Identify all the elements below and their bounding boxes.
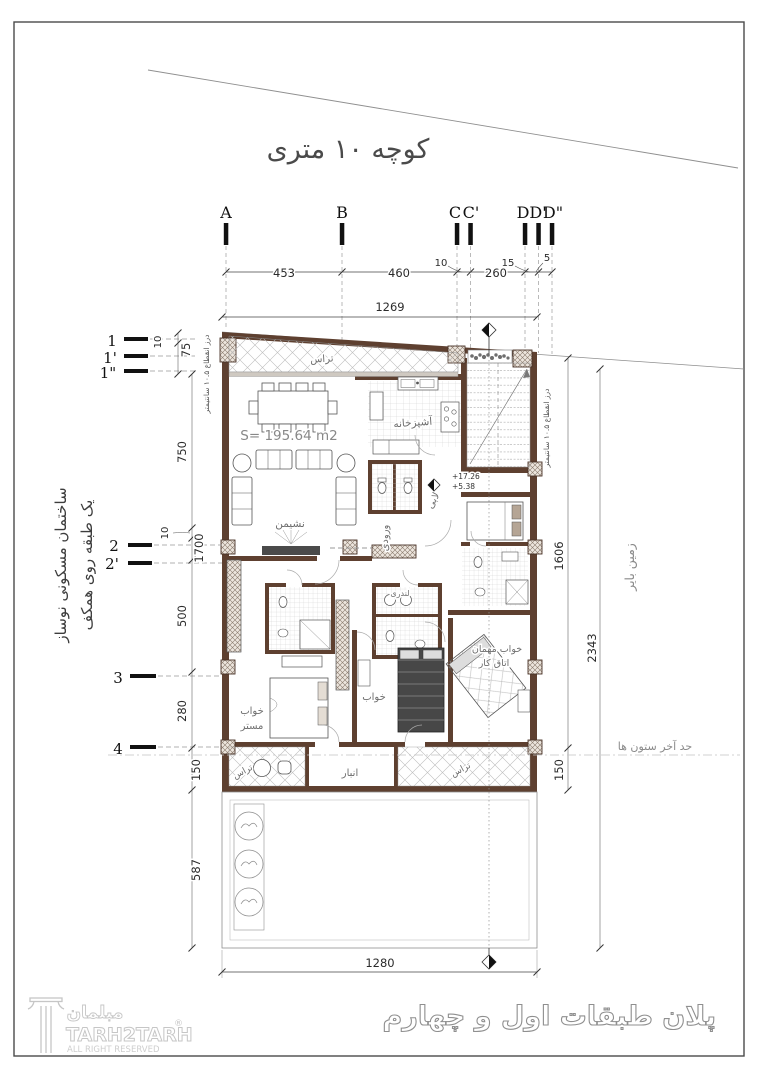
dim-c-gap: 10 <box>435 258 448 269</box>
stairwell <box>467 363 530 467</box>
dim-d-gap2: 5 <box>544 253 550 264</box>
street-edge-line <box>148 70 738 168</box>
dim-left-280: 280 <box>175 700 189 722</box>
dim-left-750: 750 <box>175 441 189 463</box>
dim-left-500: 500 <box>175 605 189 627</box>
room-label-living: نشیمن <box>275 518 305 530</box>
dim-right-150: 150 <box>552 759 566 781</box>
dim-left-10b: 10 <box>160 527 171 540</box>
bath-right <box>462 548 528 606</box>
registered-mark: ® <box>174 1019 183 1029</box>
level-marker-icon <box>428 479 440 491</box>
drawing-sheet: کوچه ۱۰ متری A B C C' D D' D" 453 460 26… <box>0 0 764 1080</box>
guest-office-room: خواب مهمان اتاق کار <box>446 634 530 717</box>
dining-set <box>249 383 337 432</box>
flag-marker-bottom <box>482 948 496 969</box>
dim-bottom-width: 1280 <box>365 956 394 970</box>
dim-right-2343: 2343 <box>585 633 599 662</box>
middle-bedroom: خواب <box>358 648 444 732</box>
kitchen-stove <box>441 402 459 432</box>
room-label-master1: خواب <box>240 706 264 717</box>
top-dimension-chain: 453 460 260 10 15 5 <box>223 253 556 280</box>
grid-row-label: 1 <box>107 332 117 350</box>
bed-top-right <box>467 502 523 540</box>
brand-logo: مبلمان TARH2TARH ® ALL RIGHT RESERVED <box>28 998 193 1055</box>
room-label-laundry: لندری <box>390 589 409 598</box>
tv-console <box>262 546 320 555</box>
columns-limit-label: حد آخر ستون ها <box>618 739 692 753</box>
grid-col-label: B <box>336 203 348 222</box>
grid-col-label: D <box>517 203 530 222</box>
street-name: کوچه ۱۰ متری <box>267 134 430 165</box>
dim-left-10a: 10 <box>153 336 164 349</box>
left-dimension-chain: 10 75 750 10 1700 500 280 150 587 <box>153 330 206 952</box>
bottom-band: تراس انبار تراس <box>229 747 530 786</box>
grid-col-ticks <box>224 223 555 245</box>
lot-width-dimension: 1269 <box>219 300 541 321</box>
grid-row-label: 2' <box>105 555 119 573</box>
dim-left-587: 587 <box>189 859 203 881</box>
building-note-2: یک طبقه روی همکف <box>78 500 96 631</box>
room-label-entry: ورودی <box>380 524 391 551</box>
dim-ab: 453 <box>273 266 295 280</box>
dim-right-1606: 1606 <box>552 541 566 570</box>
dim-left-75: 75 <box>179 343 193 358</box>
building-note-1: ساختمان مسکونی نوساز <box>52 487 70 643</box>
brand-farsi: مبلمان <box>67 1003 124 1023</box>
kitchen-cabinet <box>370 392 383 420</box>
master-bedroom: خواب مستر <box>240 656 328 738</box>
area-label: S= 195.64 m2 <box>240 428 337 444</box>
level-upper: +17.26 <box>452 472 480 481</box>
vacant-land-label: زمین بایر <box>622 543 638 592</box>
brand-rights: ALL RIGHT RESERVED <box>67 1045 160 1055</box>
garden <box>222 792 537 948</box>
dim-bc: 460 <box>388 266 410 280</box>
room-label-terrace-top: تراس <box>310 353 334 365</box>
room-label-master2: مستر <box>240 721 264 732</box>
grid-col-label: D" <box>543 203 563 222</box>
expansion-joint-right: درز انقطاع ۱۰.۵ سانتیمتر <box>542 388 551 468</box>
expansion-joint-left: درز انقطاع ۱۰.۵ سانتیمتر <box>202 334 211 414</box>
grid-col-label: C' <box>463 203 480 222</box>
laundry-bath: لندری <box>376 587 438 655</box>
floor-plan-sheet: کوچه ۱۰ متری A B C C' D D' D" 453 460 26… <box>0 0 764 1080</box>
master-bath <box>269 587 331 650</box>
dim-d-gap: 15 <box>502 258 515 269</box>
grid-col-label: C <box>449 203 461 222</box>
room-label-guest1: خواب مهمان <box>472 644 522 655</box>
column-icon <box>28 998 64 1053</box>
room-label-lobby: لابی <box>425 491 443 511</box>
planter <box>468 350 512 363</box>
room-label-guest2: اتاق کار <box>478 658 510 669</box>
dim-left-1700: 1700 <box>192 533 206 562</box>
level-lower: +5.38 <box>452 482 475 491</box>
grid-row-label: 2 <box>109 537 119 555</box>
dim-left-150: 150 <box>189 759 203 781</box>
dim-lot-width: 1269 <box>375 300 404 314</box>
room-label-bedroom: خواب <box>362 692 386 703</box>
kitchen-island <box>373 440 419 454</box>
grid-col-label: A <box>219 203 232 222</box>
room-label-storage: انبار <box>341 768 358 779</box>
living-room: نشیمن <box>232 450 356 555</box>
kitchen: آشپزخانه <box>368 377 461 454</box>
drawing-title: پلان طبقات اول و چهارم <box>383 1001 716 1032</box>
right-dimension-chain: 1606 150 2343 <box>552 355 604 952</box>
grid-row-label: 3 <box>113 669 123 687</box>
wc-block <box>372 464 418 510</box>
grid-row-label: 1" <box>100 364 116 382</box>
